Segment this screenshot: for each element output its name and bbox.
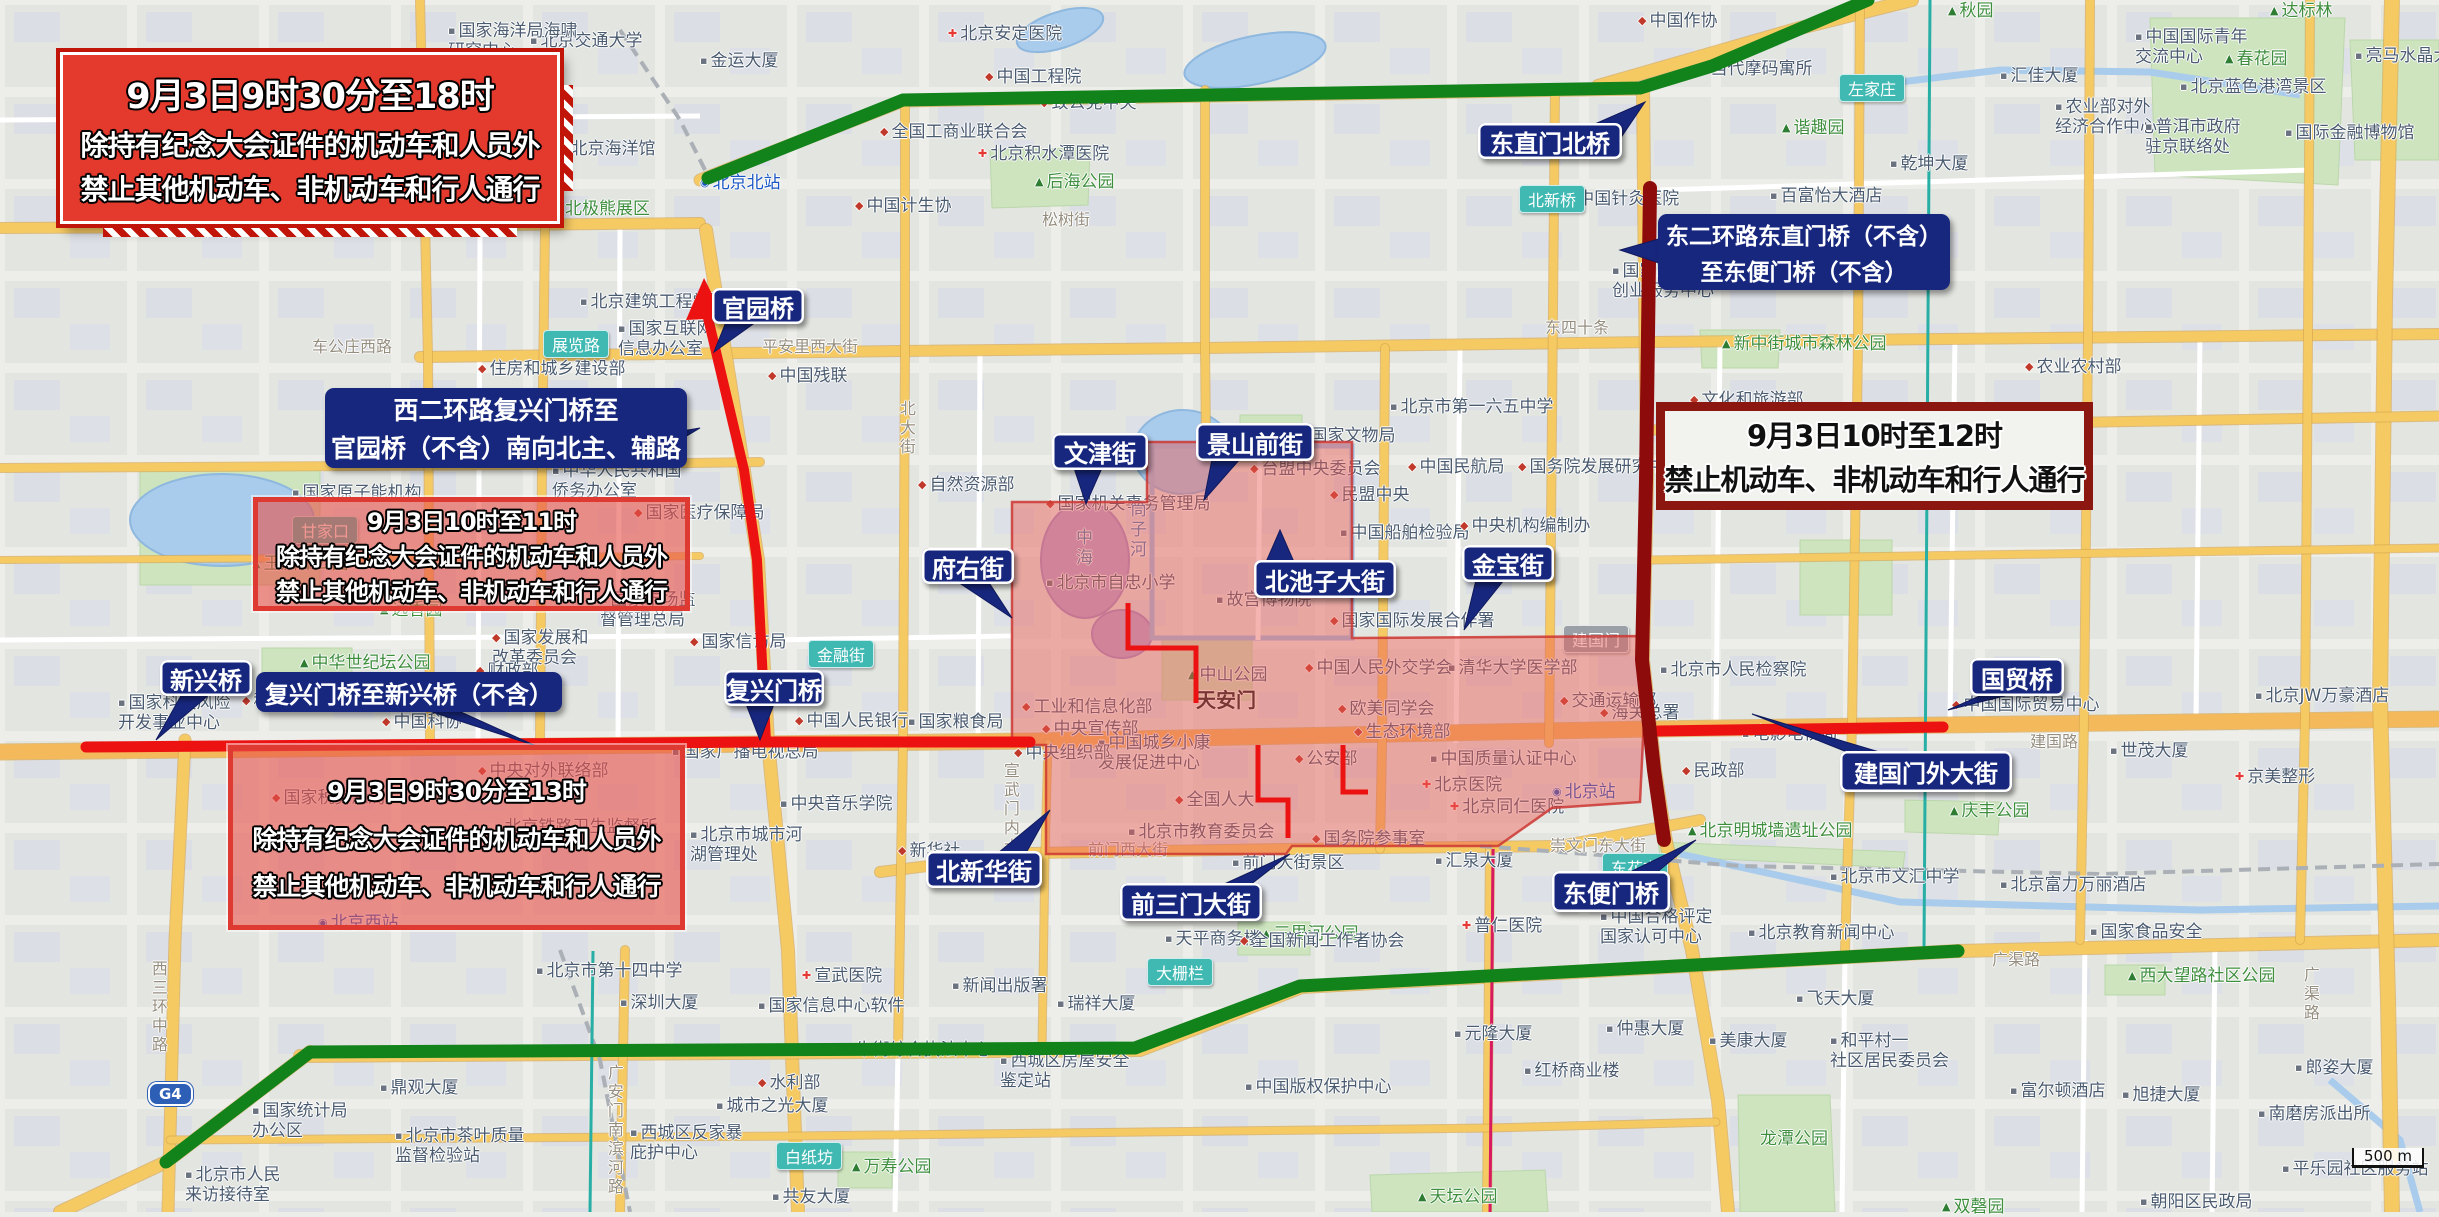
banner-line: 9月3日10时至12时	[1747, 413, 2002, 455]
banner-line: 除持有纪念大会证件的机动车和人员外	[252, 820, 660, 856]
bridge-callout: 国贸桥	[1970, 658, 2064, 696]
bridge-callout: 北池子大街	[1254, 560, 1396, 598]
banner-line: 除持有纪念大会证件的机动车和人员外	[276, 537, 667, 572]
bridge-callout: 新兴桥	[160, 660, 252, 696]
restriction-banner-10-to-12: 9月3日10时至12时 禁止机动车、非机动车和行人通行	[1656, 402, 2093, 510]
banner-line: 禁止机动车、非机动车和行人通行	[1665, 457, 2085, 499]
banner-line: 除持有纪念大会证件的机动车和人员外	[80, 124, 539, 164]
bridge-callout: 北新华街	[926, 851, 1042, 888]
banner-line: 9月3日9时30分至13时	[327, 772, 586, 808]
bridge-callout: 复兴门桥	[724, 670, 824, 706]
route-restriction-callout-w2ring: 西二环路复兴门桥至官园桥（不含）南向北主、辅路	[325, 388, 687, 468]
bridge-callout: 建国门外大街	[1840, 751, 2012, 792]
route-restriction-callout-fuxing-xinxing: 复兴门桥至新兴桥（不含）	[256, 672, 562, 712]
route-callout-line: 复兴门桥至新兴桥（不含）	[265, 675, 553, 710]
bridge-callout: 东便门桥	[1552, 871, 1670, 912]
banner-line: 禁止其他机动车、非机动车和行人通行	[276, 572, 667, 607]
bridge-callout: 景山前街	[1196, 423, 1314, 461]
banner-line: 9月3日10时至11时	[367, 502, 576, 537]
route-restriction-callout-e2ring: 东二环路东直门桥（不含）至东便门桥（不含）	[1658, 214, 1950, 290]
bridge-callout: 文津街	[1052, 433, 1148, 470]
route-callout-line: 官园桥（不含）南向北主、辅路	[331, 429, 681, 465]
restriction-banner-10-to-11: 9月3日10时至11时 除持有纪念大会证件的机动车和人员外 禁止其他机动车、非机…	[253, 497, 690, 611]
route-callout-line: 东二环路东直门桥（不含）	[1666, 217, 1942, 251]
bridge-callout: 前三门大街	[1120, 883, 1262, 921]
restriction-banner-930-to-18: 9月3日9时30分至18时 除持有纪念大会证件的机动车和人员外 禁止其他机动车、…	[60, 52, 560, 224]
route-callout-line: 西二环路复兴门桥至	[393, 391, 618, 427]
map-annotation-layer: 9月3日9时30分至18时 除持有纪念大会证件的机动车和人员外 禁止其他机动车、…	[0, 0, 2439, 1212]
route-callout-line: 至东便门桥（不含）	[1701, 253, 1908, 287]
bridge-callout: 官园桥	[712, 288, 804, 324]
banner-line: 禁止其他机动车、非机动车和行人通行	[80, 168, 539, 208]
bridge-callout: 金宝街	[1462, 545, 1554, 582]
bridge-callout: 东直门北桥	[1478, 123, 1622, 159]
banner-line: 禁止其他机动车、非机动车和行人通行	[252, 867, 660, 903]
beijing-traffic-restriction-map: { "notice_banners": { "banner_918": {"li…	[0, 0, 2439, 1212]
restriction-banner-930-to-13: 9月3日9时30分至13时 除持有纪念大会证件的机动车和人员外 禁止其他机动车、…	[228, 745, 685, 930]
banner-line: 9月3日9时30分至18时	[126, 68, 493, 119]
bridge-callout: 府右街	[922, 548, 1014, 584]
